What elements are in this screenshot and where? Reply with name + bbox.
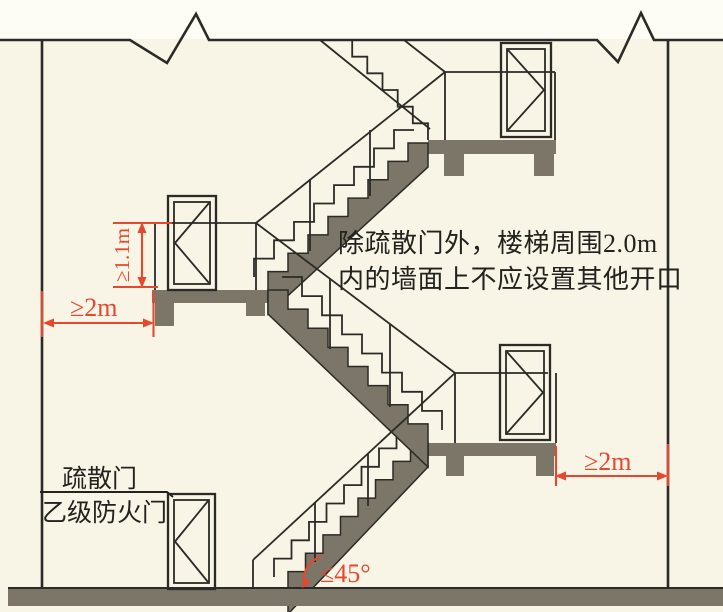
dim-label-stair-angle: ≤45° [320, 559, 371, 588]
dim-label-left-clearance: ≥2m [70, 293, 118, 322]
landing-leg [536, 456, 554, 476]
landing-slab-middle [152, 290, 268, 303]
landing-leg [246, 303, 265, 316]
landing-slab-lower [428, 443, 556, 456]
stair-diagram: 除疏散门外，楼梯周围2.0m 内的墙面上不应设置其他开口 ≥1.1m ≥2m ≥… [0, 0, 723, 612]
dim-label-door-width: ≥1.1m [110, 228, 134, 282]
label-fire-door: 乙级防火门 [42, 499, 167, 527]
landing-leg [444, 154, 464, 176]
area-above-wall [0, 0, 723, 39]
diagram-canvas: 除疏散门外，楼梯周围2.0m 内的墙面上不应设置其他开口 ≥1.1m ≥2m ≥… [0, 0, 723, 612]
landing-slab-upper [428, 140, 556, 154]
note-line2: 内的墙面上不应设置其他开口 [338, 265, 683, 294]
ground-strip [8, 588, 723, 606]
dim-label-right-clearance: ≥2m [584, 447, 632, 476]
label-evacuation-door: 疏散门 [62, 465, 137, 493]
landing-leg [534, 154, 554, 176]
note-line1: 除疏散门外，楼梯周围2.0m [338, 229, 658, 258]
landing-leg [446, 456, 464, 476]
landing-leg [155, 303, 174, 326]
